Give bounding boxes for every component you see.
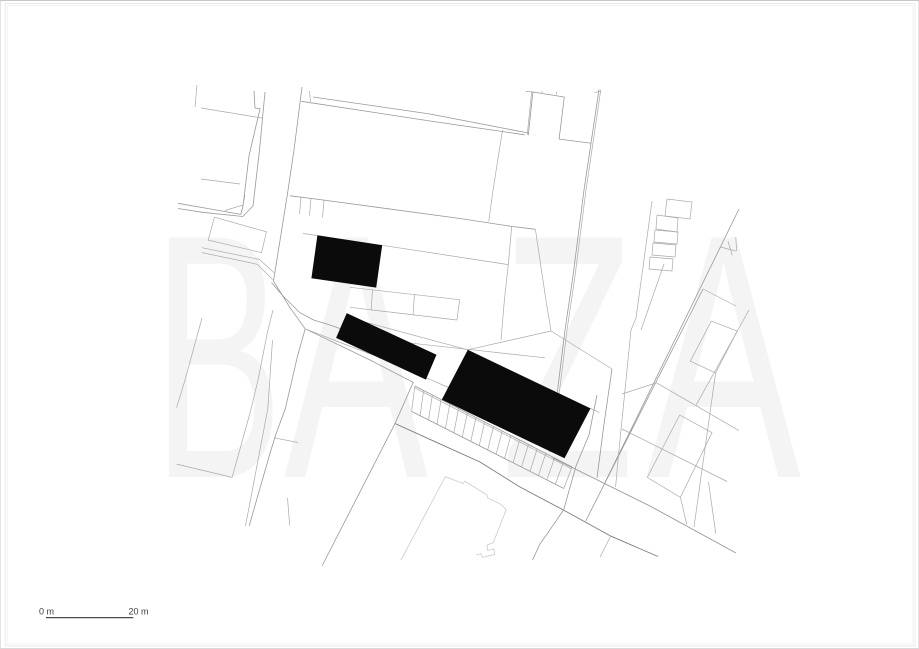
svg-text:Z: Z — [501, 162, 634, 551]
svg-text:0 m: 0 m — [39, 607, 54, 617]
svg-text:B: B — [153, 162, 283, 551]
svg-text:20 m: 20 m — [129, 607, 149, 617]
